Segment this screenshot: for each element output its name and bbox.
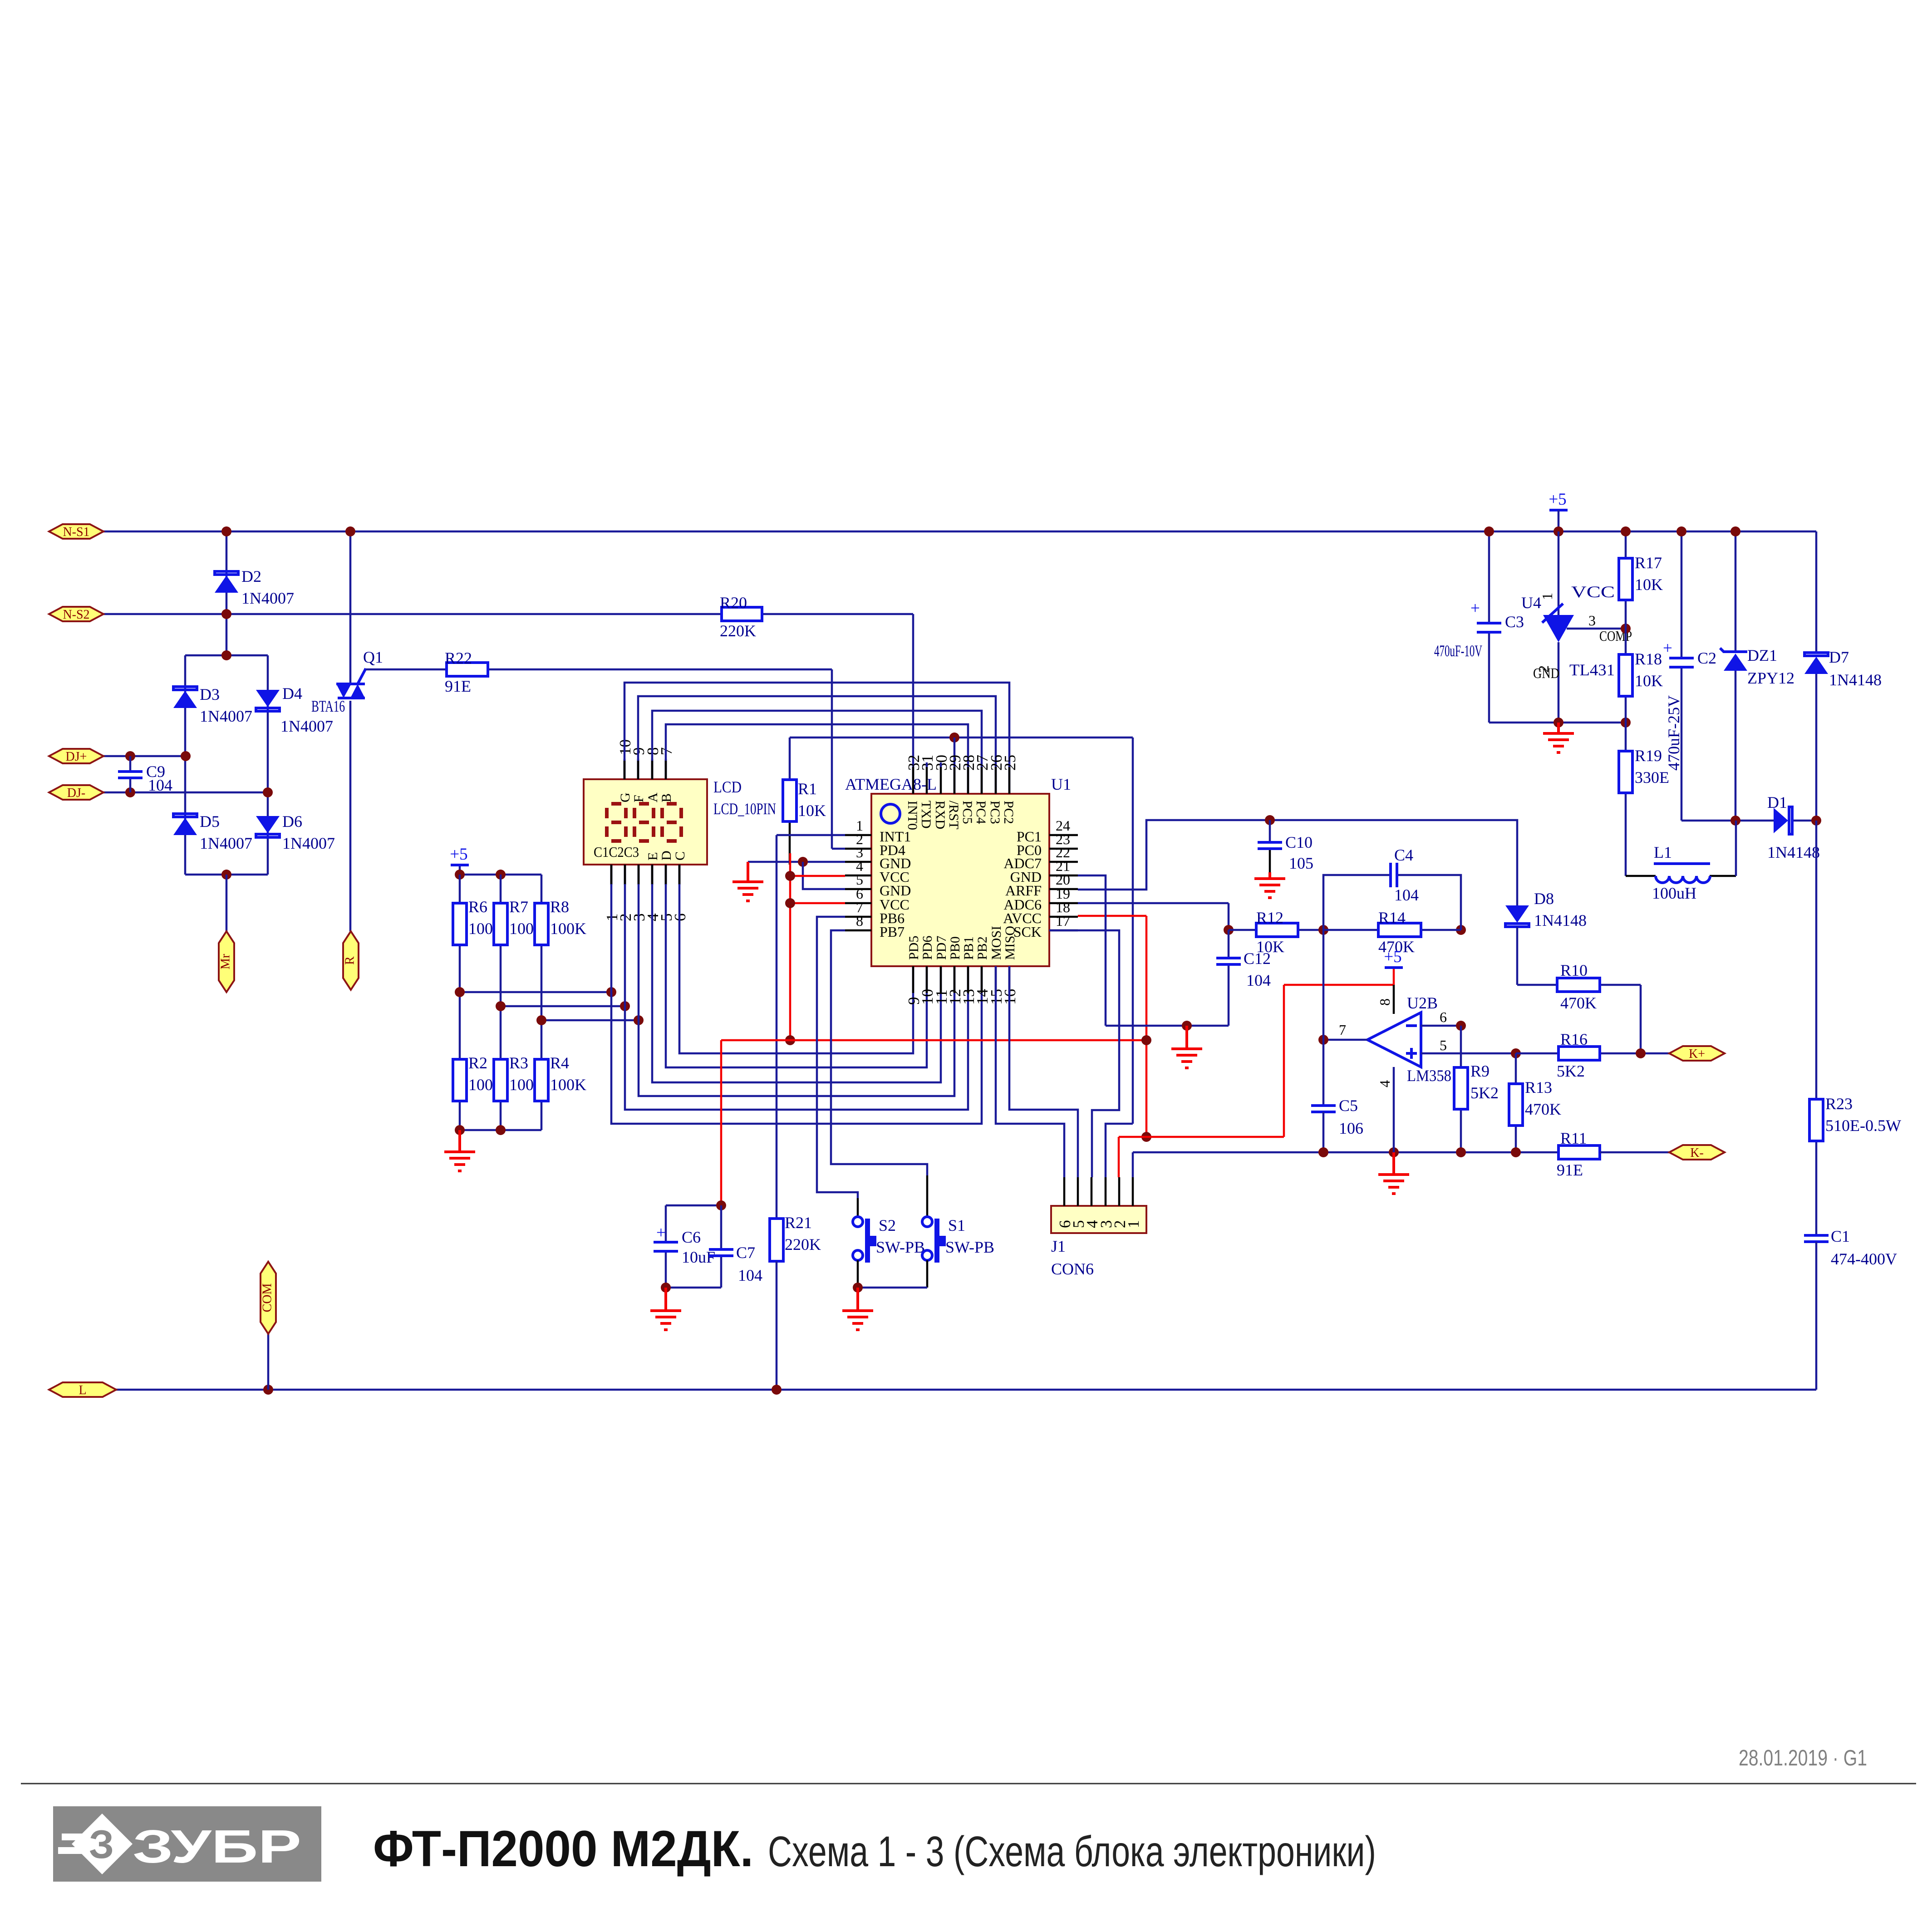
svg-text:5K2: 5K2 — [1557, 1062, 1585, 1080]
svg-text:D6: D6 — [282, 812, 302, 831]
svg-text:DZ1: DZ1 — [1747, 646, 1777, 664]
svg-text:U4: U4 — [1521, 594, 1541, 612]
svg-text:U2B: U2B — [1407, 994, 1438, 1012]
svg-text:LCD: LCD — [713, 778, 742, 796]
svg-text:R9: R9 — [1470, 1062, 1490, 1080]
svg-text:DJ+: DJ+ — [66, 750, 87, 764]
svg-text:R17: R17 — [1635, 554, 1662, 572]
svg-text:J1: J1 — [1051, 1237, 1066, 1255]
svg-text:220K: 220K — [785, 1235, 821, 1254]
svg-text:330E: 330E — [1635, 768, 1669, 787]
svg-text:D: D — [659, 850, 674, 860]
svg-text:C: C — [673, 851, 688, 860]
svg-text:470uF-10V: 470uF-10V — [1434, 642, 1482, 660]
svg-text:R10: R10 — [1560, 961, 1588, 979]
svg-text:91E: 91E — [445, 677, 471, 695]
svg-text:R20: R20 — [720, 594, 747, 612]
svg-text:R2: R2 — [468, 1054, 487, 1072]
svg-text:PB1: PB1 — [961, 936, 976, 960]
svg-text:1N4148: 1N4148 — [1829, 671, 1882, 689]
svg-text:PB7: PB7 — [880, 924, 905, 940]
svg-text:1N4007: 1N4007 — [200, 707, 252, 725]
svg-text:PC4: PC4 — [973, 801, 988, 824]
svg-text:R16: R16 — [1560, 1030, 1588, 1048]
svg-text:1N4007: 1N4007 — [280, 717, 333, 735]
svg-text:104: 104 — [1394, 886, 1419, 904]
svg-text:U1: U1 — [1051, 775, 1071, 793]
svg-text:Схема 1 - 3 (Схема блока элект: Схема 1 - 3 (Схема блока электроники) — [768, 1828, 1376, 1876]
svg-text:BTA16: BTA16 — [311, 697, 345, 715]
svg-text:10K: 10K — [1635, 672, 1663, 690]
svg-text:TL431: TL431 — [1569, 661, 1615, 679]
svg-text:C2: C2 — [1697, 649, 1716, 667]
svg-text:D2: D2 — [241, 567, 261, 585]
svg-text:+5: +5 — [1549, 490, 1566, 509]
svg-text:C3: C3 — [1505, 613, 1524, 631]
svg-text:R14: R14 — [1378, 909, 1406, 927]
svg-text:R7: R7 — [509, 898, 528, 916]
svg-text:R19: R19 — [1635, 747, 1662, 765]
svg-text:R23: R23 — [1825, 1095, 1853, 1113]
svg-text:470K: 470K — [1525, 1100, 1561, 1118]
svg-text:PB2: PB2 — [975, 936, 990, 960]
svg-text:VCC: VCC — [1571, 583, 1615, 601]
svg-text:R22: R22 — [445, 649, 472, 667]
svg-text:R13: R13 — [1525, 1078, 1552, 1096]
svg-text:D5: D5 — [200, 812, 220, 831]
svg-text:S1: S1 — [948, 1216, 965, 1234]
svg-text:510E-0.5W: 510E-0.5W — [1825, 1116, 1901, 1135]
svg-text:/RST: /RST — [946, 801, 961, 829]
svg-text:25: 25 — [1001, 755, 1019, 771]
svg-text:SW-PB: SW-PB — [876, 1238, 925, 1256]
svg-text:28.01.2019 · G1: 28.01.2019 · G1 — [1739, 1746, 1867, 1770]
svg-text:6: 6 — [1440, 1009, 1447, 1025]
svg-text:C6: C6 — [682, 1228, 701, 1246]
svg-text:D4: D4 — [282, 684, 302, 703]
svg-text:CON6: CON6 — [1051, 1260, 1094, 1278]
svg-text:C4: C4 — [1394, 846, 1413, 864]
svg-text:100K: 100K — [550, 919, 586, 938]
svg-text:R6: R6 — [468, 898, 487, 916]
svg-text:L: L — [79, 1383, 86, 1397]
svg-text:З: З — [89, 1822, 114, 1867]
svg-text:S2: S2 — [879, 1216, 896, 1234]
svg-text:1N4148: 1N4148 — [1767, 843, 1820, 861]
svg-text:N-S2: N-S2 — [63, 608, 89, 622]
svg-text:104: 104 — [148, 776, 172, 794]
svg-text:R12: R12 — [1256, 909, 1283, 927]
svg-text:+5: +5 — [1384, 948, 1401, 966]
svg-text:D7: D7 — [1829, 648, 1849, 666]
svg-text:G: G — [618, 792, 633, 802]
svg-text:A: A — [645, 792, 660, 802]
svg-text:106: 106 — [1339, 1119, 1363, 1137]
svg-text:ATMEGA8-L: ATMEGA8-L — [845, 775, 937, 793]
svg-text:+: + — [1470, 599, 1480, 618]
svg-text:ФТ-П2000 М2ДК.: ФТ-П2000 М2ДК. — [373, 1820, 753, 1877]
svg-text:R18: R18 — [1635, 650, 1662, 668]
svg-text:1: 1 — [1125, 1220, 1142, 1229]
svg-text:8: 8 — [856, 913, 863, 929]
svg-text:1N4007: 1N4007 — [241, 589, 294, 607]
svg-text:Mr: Mr — [218, 954, 232, 969]
svg-text:R: R — [343, 956, 357, 965]
svg-text:D1: D1 — [1767, 793, 1787, 811]
svg-text:Q1: Q1 — [363, 648, 383, 666]
svg-text:C12: C12 — [1244, 949, 1271, 968]
svg-text:1N4007: 1N4007 — [200, 834, 252, 852]
svg-text:470uF-25V: 470uF-25V — [1665, 695, 1683, 771]
svg-text:R8: R8 — [550, 898, 569, 916]
svg-text:8: 8 — [1376, 998, 1393, 1006]
svg-text:PC3: PC3 — [988, 801, 1003, 824]
svg-text:C5: C5 — [1339, 1096, 1358, 1115]
svg-text:PC2: PC2 — [1001, 801, 1016, 824]
svg-text:PD7: PD7 — [934, 936, 949, 960]
svg-text:LCD_10PIN: LCD_10PIN — [713, 800, 776, 818]
svg-text:E: E — [645, 852, 660, 860]
svg-text:104: 104 — [738, 1266, 762, 1284]
svg-text:R1: R1 — [798, 780, 817, 798]
svg-text:1N4007: 1N4007 — [282, 834, 335, 852]
svg-text:100K: 100K — [550, 1076, 586, 1094]
svg-text:INT0: INT0 — [905, 801, 920, 830]
svg-text:1N4148: 1N4148 — [1534, 911, 1587, 929]
svg-text:10K: 10K — [798, 801, 826, 820]
svg-text:TXD: TXD — [919, 801, 934, 829]
svg-text:B: B — [659, 793, 674, 802]
svg-text:R3: R3 — [509, 1054, 528, 1072]
svg-text:10K: 10K — [1635, 575, 1663, 594]
svg-text:R4: R4 — [550, 1054, 569, 1072]
svg-text:N-S1: N-S1 — [63, 525, 89, 539]
svg-text:L1: L1 — [1654, 843, 1672, 861]
svg-text:LM358: LM358 — [1407, 1067, 1451, 1085]
svg-text:PC5: PC5 — [960, 801, 975, 824]
svg-text:DJ-: DJ- — [67, 786, 85, 800]
svg-text:D3: D3 — [200, 685, 220, 703]
svg-text:104: 104 — [1246, 971, 1271, 989]
svg-text:5: 5 — [1440, 1037, 1447, 1053]
svg-text:SW-PB: SW-PB — [945, 1238, 994, 1256]
svg-text:ZPY12: ZPY12 — [1747, 669, 1794, 687]
svg-text:ЗУБР: ЗУБР — [133, 1820, 301, 1873]
svg-text:C7: C7 — [736, 1244, 755, 1262]
svg-text:+: + — [656, 1224, 666, 1242]
svg-text:4: 4 — [1376, 1080, 1393, 1087]
svg-text:470K: 470K — [1560, 994, 1597, 1012]
svg-text:C1: C1 — [1831, 1227, 1850, 1245]
svg-text:K+: K+ — [1689, 1047, 1705, 1061]
svg-text:MOSI: MOSI — [989, 926, 1004, 960]
svg-text:5K2: 5K2 — [1470, 1084, 1499, 1102]
svg-text:D8: D8 — [1534, 890, 1554, 908]
svg-text:17: 17 — [1056, 913, 1070, 929]
svg-text:PD5: PD5 — [906, 936, 921, 960]
svg-text:+5: +5 — [450, 845, 467, 864]
svg-text:PD6: PD6 — [920, 936, 935, 960]
svg-text:C1C2C3: C1C2C3 — [594, 844, 639, 860]
svg-text:R21: R21 — [785, 1214, 812, 1232]
svg-text:C10: C10 — [1285, 833, 1313, 851]
svg-text:91E: 91E — [1557, 1161, 1583, 1179]
svg-text:COM: COM — [260, 1283, 274, 1313]
svg-text:R11: R11 — [1560, 1129, 1587, 1147]
svg-text:1: 1 — [1539, 593, 1555, 600]
svg-text:K-: K- — [1690, 1146, 1704, 1160]
svg-text:PB0: PB0 — [948, 936, 963, 960]
svg-text:GND: GND — [1533, 665, 1559, 681]
svg-text:100uH: 100uH — [1652, 884, 1696, 902]
svg-text:+: + — [1663, 639, 1672, 658]
svg-text:F: F — [631, 795, 646, 802]
svg-text:SCK: SCK — [1013, 924, 1042, 940]
svg-text:3: 3 — [1588, 612, 1596, 629]
svg-text:7: 7 — [1339, 1022, 1346, 1038]
svg-text:RXD: RXD — [933, 801, 948, 829]
svg-text:MISO: MISO — [1003, 926, 1018, 960]
svg-text:220K: 220K — [720, 622, 756, 640]
svg-text:105: 105 — [1289, 854, 1313, 872]
svg-text:474-400V: 474-400V — [1831, 1250, 1897, 1268]
